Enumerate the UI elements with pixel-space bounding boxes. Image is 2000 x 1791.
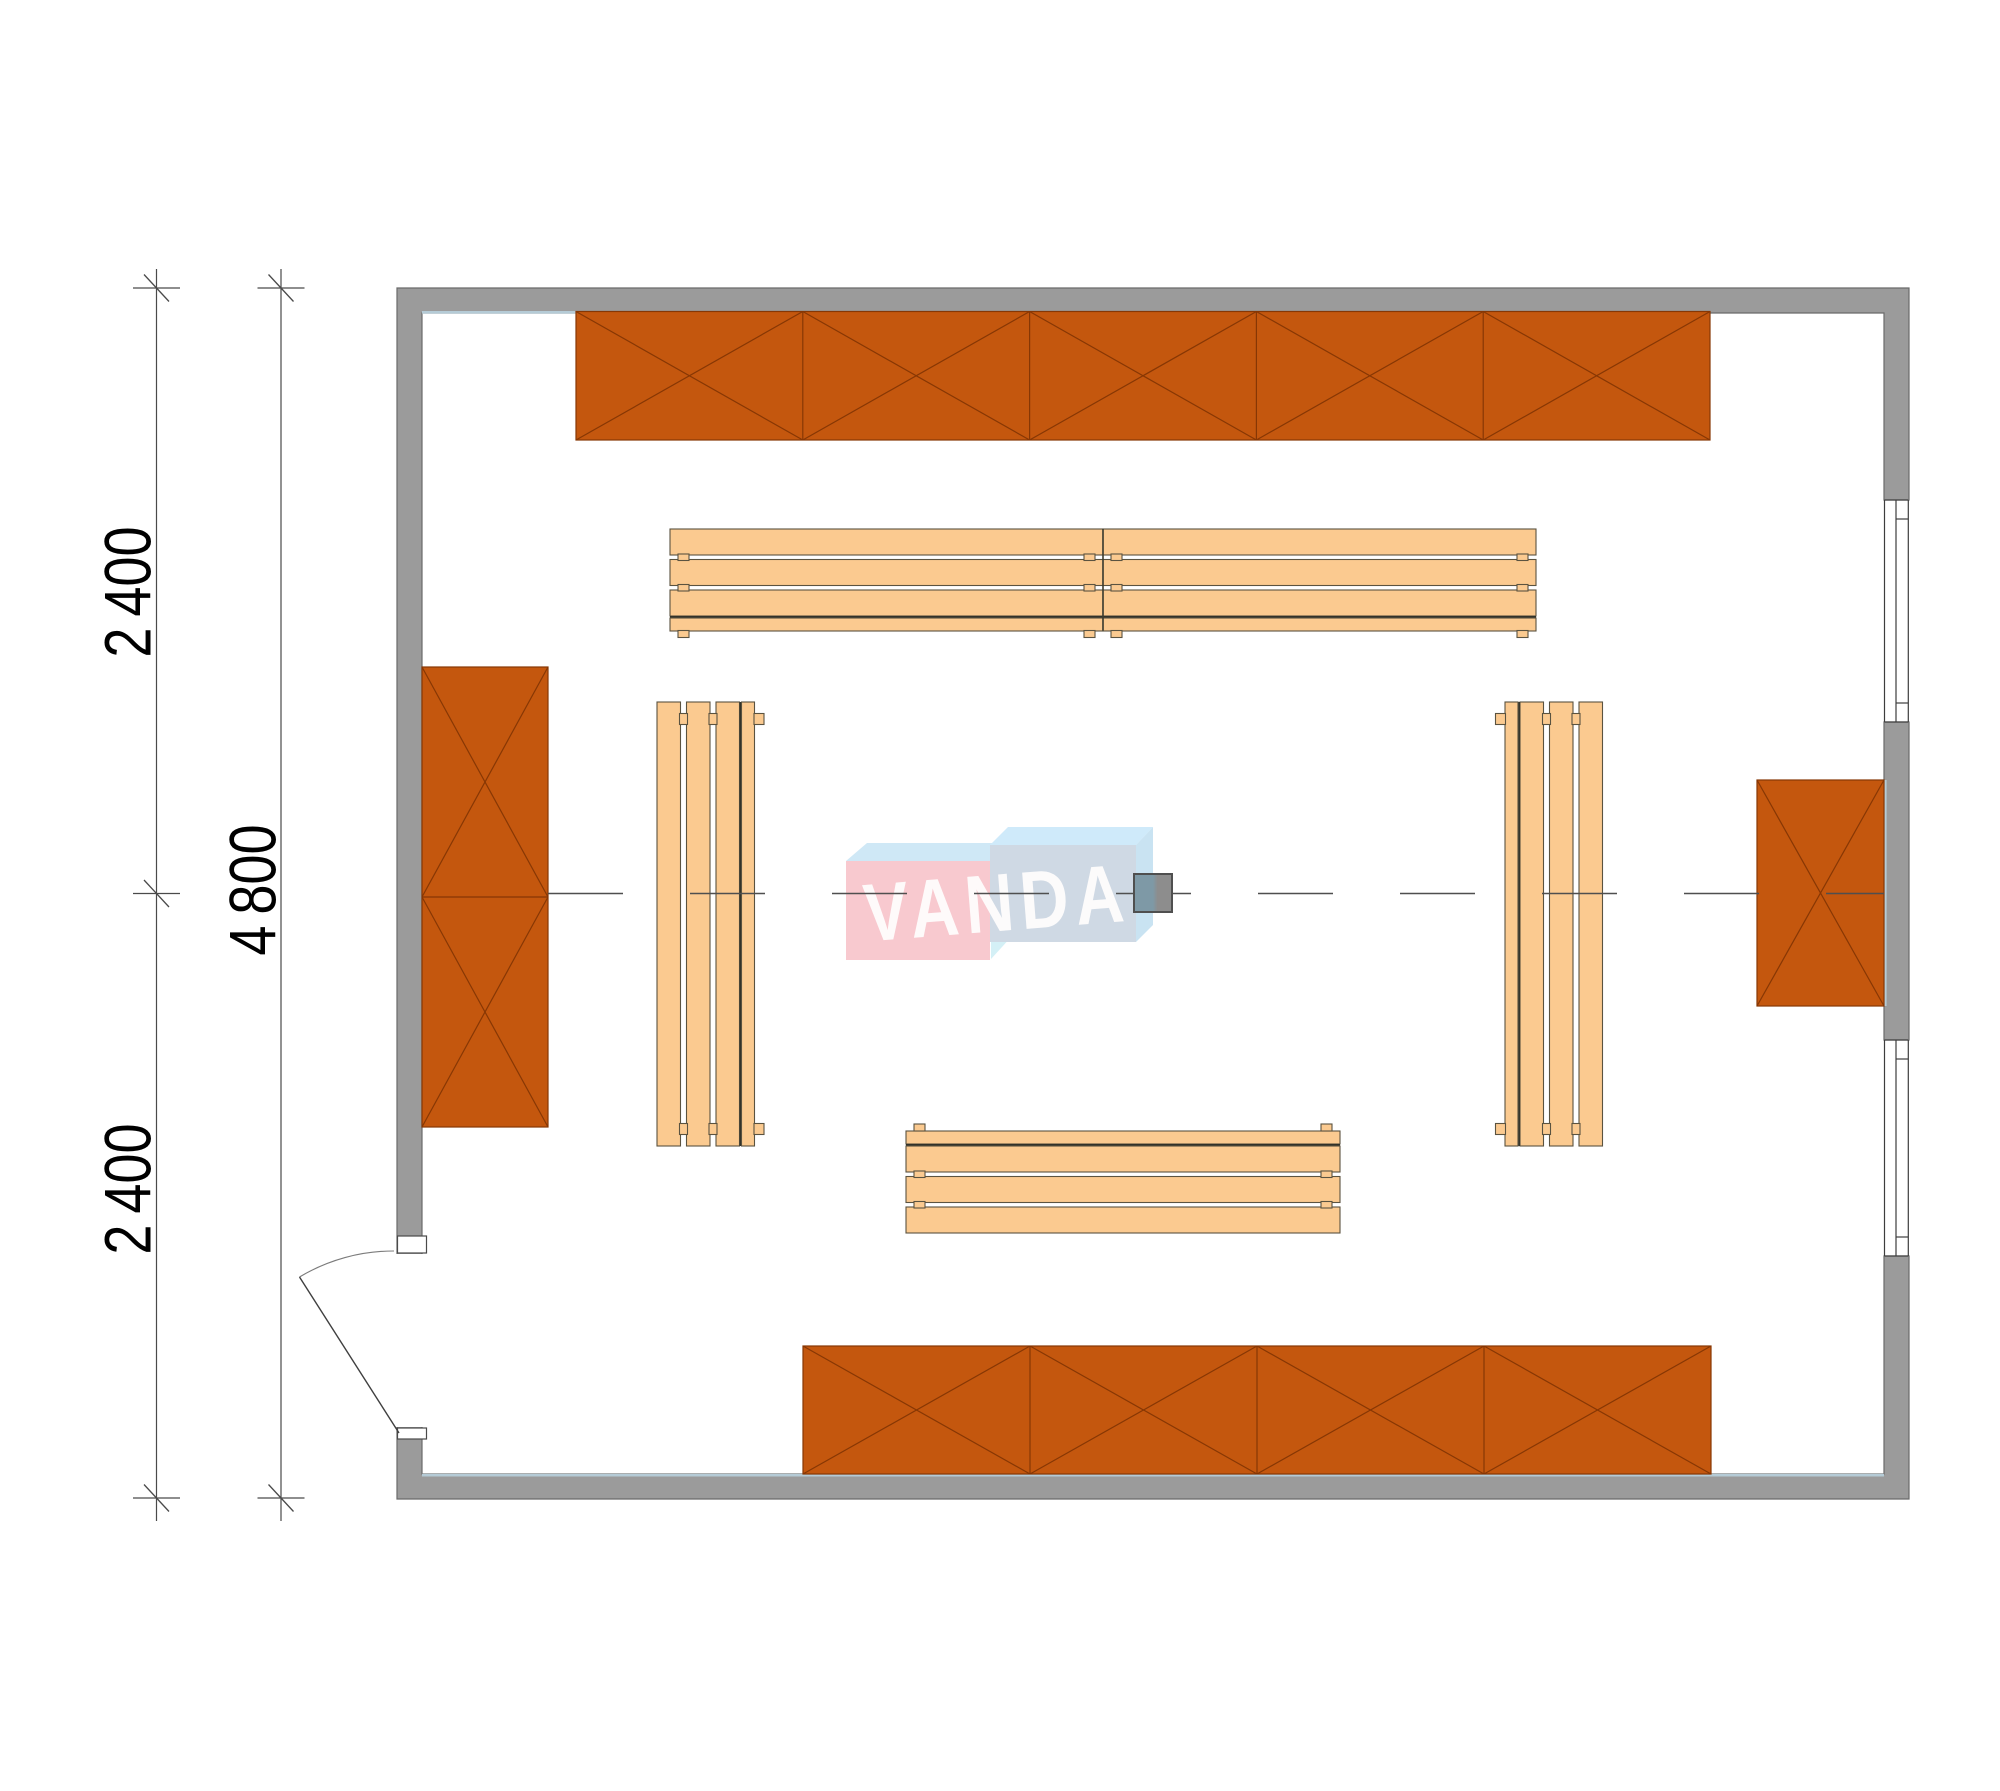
svg-text:4 800: 4 800 (215, 824, 289, 955)
svg-text:2 400: 2 400 (90, 526, 164, 657)
svg-text:2 400: 2 400 (90, 1123, 164, 1254)
